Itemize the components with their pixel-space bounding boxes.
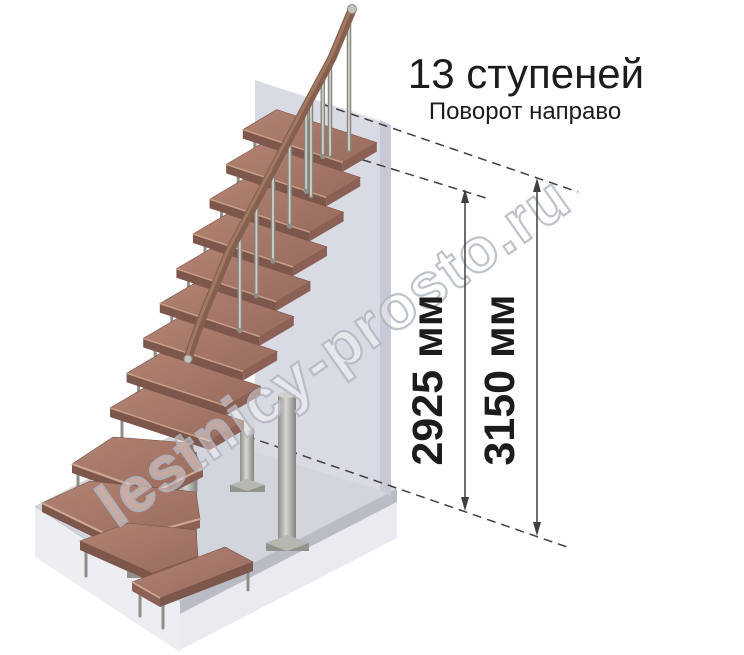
page-subtitle: Поворот направо bbox=[429, 98, 621, 125]
arrow-down-icon bbox=[461, 497, 469, 511]
handrail-top-ferrule bbox=[348, 5, 357, 14]
handrail-bottom-ferrule bbox=[184, 355, 192, 363]
dimension-label-2925: 2925 мм bbox=[404, 294, 452, 465]
arrow-down-icon bbox=[533, 522, 541, 536]
dimension-label-3150: 3150 мм bbox=[476, 294, 524, 465]
arrow-up-icon bbox=[461, 189, 469, 203]
page-title: 13 ступеней bbox=[408, 50, 644, 97]
staircase-diagram-page: lestnicy-prosto.ru 2925 мм 3150 мм 13 ст… bbox=[0, 0, 744, 655]
staircase-illustration: lestnicy-prosto.ru 2925 мм 3150 мм 13 ст… bbox=[0, 0, 744, 655]
